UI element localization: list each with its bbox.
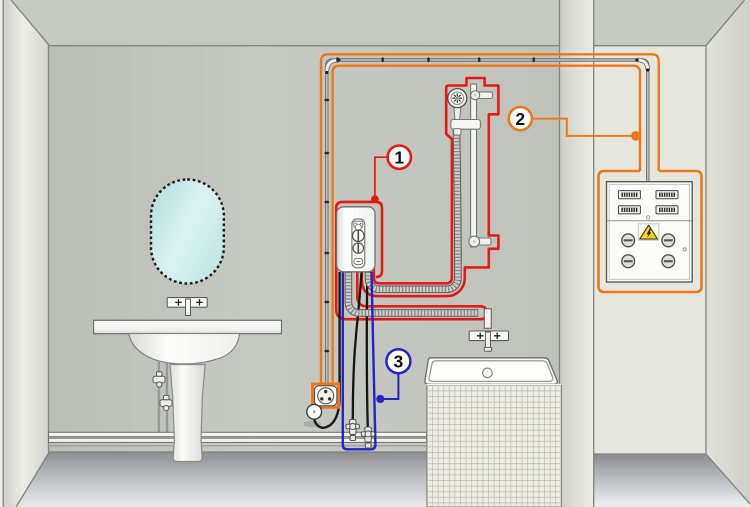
svg-text:3: 3: [394, 351, 404, 371]
svg-text:2: 2: [515, 109, 525, 129]
svg-text:1: 1: [394, 147, 404, 167]
